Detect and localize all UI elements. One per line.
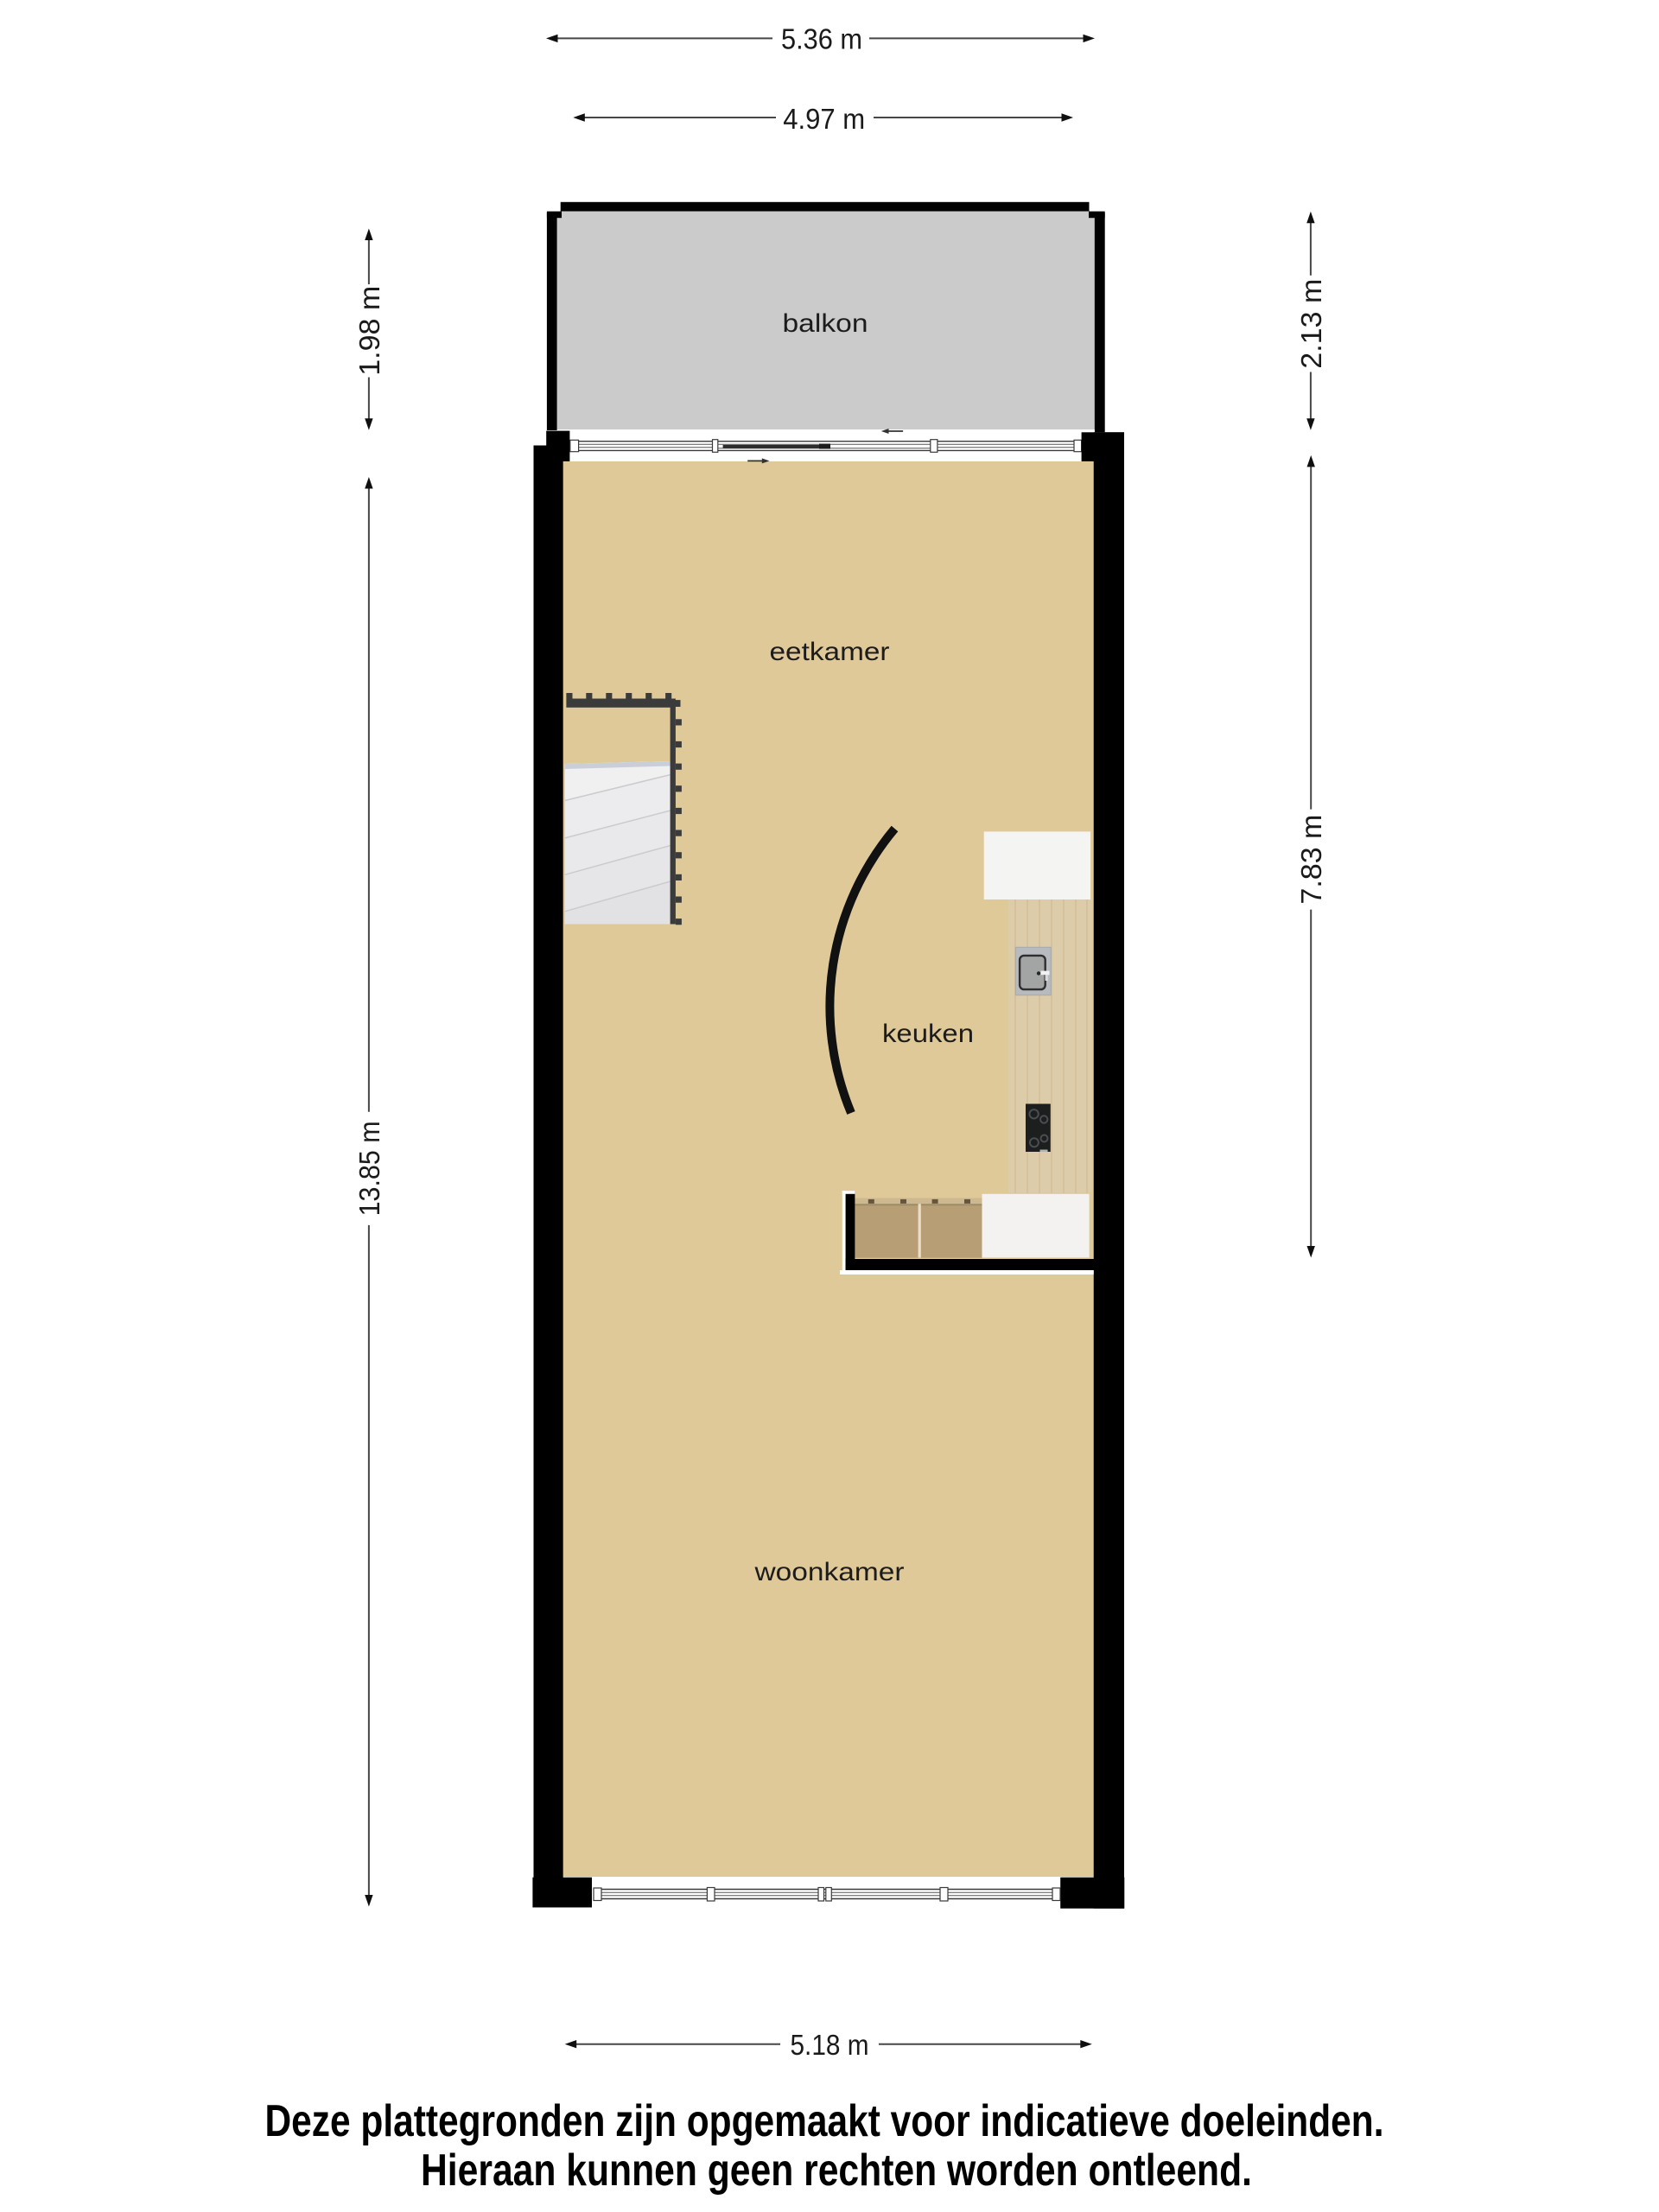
svg-text:woonkamer: woonkamer xyxy=(753,1558,904,1586)
svg-text:2.13 m: 2.13 m xyxy=(1295,279,1327,369)
svg-text:eetkamer: eetkamer xyxy=(770,638,890,666)
svg-text:Hieraan kunnen geen rechten wo: Hieraan kunnen geen rechten worden ontle… xyxy=(421,2145,1252,2196)
svg-text:Deze plattegronden zijn opgema: Deze plattegronden zijn opgemaakt voor i… xyxy=(265,2096,1384,2146)
svg-text:13.85 m: 13.85 m xyxy=(353,1121,385,1216)
svg-text:7.83 m: 7.83 m xyxy=(1295,815,1327,905)
svg-text:5.36 m: 5.36 m xyxy=(781,23,862,55)
svg-text:5.18 m: 5.18 m xyxy=(791,2029,869,2061)
svg-text:keuken: keuken xyxy=(882,1020,974,1048)
svg-text:balkon: balkon xyxy=(783,309,868,338)
svg-text:1.98 m: 1.98 m xyxy=(353,286,385,376)
svg-text:4.97 m: 4.97 m xyxy=(783,103,865,135)
